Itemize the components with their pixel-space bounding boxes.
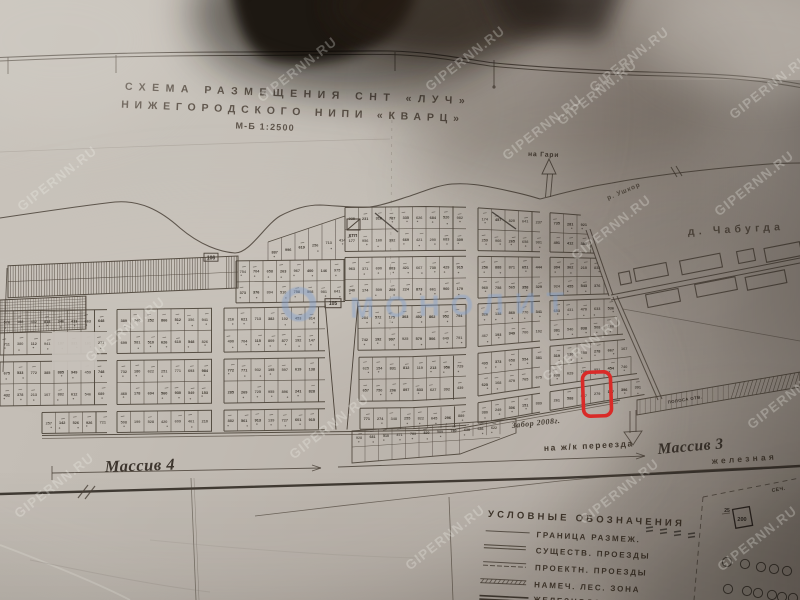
svg-text:146: 146 bbox=[321, 269, 327, 273]
svg-text:882: 882 bbox=[58, 393, 64, 397]
svg-text:690: 690 bbox=[376, 267, 382, 271]
svg-text:107: 107 bbox=[44, 393, 50, 397]
svg-text:115: 115 bbox=[255, 339, 261, 343]
svg-text:263: 263 bbox=[280, 269, 286, 273]
svg-text:658: 658 bbox=[509, 359, 515, 363]
svg-text:925: 925 bbox=[402, 337, 408, 341]
svg-text:231: 231 bbox=[362, 217, 368, 221]
svg-text:689: 689 bbox=[98, 392, 104, 396]
svg-text:941: 941 bbox=[202, 318, 208, 322]
svg-text:102: 102 bbox=[282, 317, 288, 321]
svg-text:694: 694 bbox=[148, 392, 155, 396]
svg-text:385: 385 bbox=[44, 371, 50, 375]
svg-text:508: 508 bbox=[121, 420, 127, 424]
svg-text:459: 459 bbox=[85, 370, 91, 374]
svg-text:619: 619 bbox=[299, 246, 305, 250]
svg-text:700: 700 bbox=[522, 331, 528, 335]
svg-text:178: 178 bbox=[134, 392, 140, 396]
svg-text:142: 142 bbox=[59, 421, 65, 425]
svg-text:721: 721 bbox=[100, 421, 106, 425]
svg-text:894: 894 bbox=[267, 291, 274, 295]
svg-text:981: 981 bbox=[321, 290, 327, 294]
svg-text:526: 526 bbox=[73, 421, 79, 425]
svg-text:833: 833 bbox=[417, 388, 423, 392]
svg-text:510: 510 bbox=[148, 341, 154, 345]
svg-text:105: 105 bbox=[329, 301, 338, 307]
svg-text:429: 429 bbox=[443, 266, 449, 270]
svg-text:560: 560 bbox=[161, 391, 167, 395]
svg-text:742: 742 bbox=[362, 338, 368, 342]
svg-text:177: 177 bbox=[349, 239, 355, 243]
svg-text:274: 274 bbox=[377, 417, 384, 421]
svg-text:956: 956 bbox=[444, 366, 450, 370]
svg-text:241: 241 bbox=[295, 390, 301, 394]
svg-text:261: 261 bbox=[554, 399, 560, 403]
svg-text:780: 780 bbox=[451, 429, 457, 433]
svg-text:648: 648 bbox=[98, 319, 104, 323]
svg-text:658: 658 bbox=[267, 270, 273, 274]
svg-text:255: 255 bbox=[404, 417, 410, 421]
svg-text:348: 348 bbox=[391, 417, 397, 421]
svg-text:461: 461 bbox=[188, 420, 194, 424]
svg-text:622: 622 bbox=[491, 426, 497, 430]
svg-text:421: 421 bbox=[416, 238, 422, 242]
svg-text:928: 928 bbox=[356, 436, 362, 440]
svg-text:439: 439 bbox=[457, 386, 463, 390]
svg-text:704: 704 bbox=[241, 339, 248, 343]
svg-text:356: 356 bbox=[188, 318, 194, 322]
svg-text:460: 460 bbox=[121, 392, 127, 396]
svg-text:296: 296 bbox=[445, 416, 451, 420]
svg-text:119: 119 bbox=[417, 366, 423, 370]
svg-text:349: 349 bbox=[509, 332, 515, 336]
svg-text:512: 512 bbox=[175, 318, 181, 322]
svg-text:820: 820 bbox=[424, 431, 430, 435]
svg-text:772: 772 bbox=[31, 371, 37, 375]
svg-text:882: 882 bbox=[228, 419, 234, 423]
svg-text:335: 335 bbox=[403, 216, 409, 220]
svg-text:926: 926 bbox=[86, 421, 92, 425]
svg-text:168: 168 bbox=[495, 381, 501, 385]
svg-text:306: 306 bbox=[509, 406, 515, 410]
svg-text:625: 625 bbox=[363, 367, 369, 371]
svg-text:866: 866 bbox=[161, 318, 167, 322]
svg-text:561: 561 bbox=[241, 419, 247, 423]
svg-text:533: 533 bbox=[17, 371, 23, 375]
svg-text:373: 373 bbox=[240, 291, 246, 295]
svg-text:638: 638 bbox=[464, 428, 470, 432]
svg-text:102: 102 bbox=[536, 330, 542, 334]
svg-text:675: 675 bbox=[4, 371, 10, 375]
svg-text:106: 106 bbox=[207, 256, 216, 262]
svg-text:686: 686 bbox=[478, 427, 484, 431]
svg-text:112: 112 bbox=[31, 342, 37, 346]
svg-text:627: 627 bbox=[430, 388, 436, 392]
svg-text:579: 579 bbox=[416, 337, 422, 341]
svg-text:625: 625 bbox=[482, 383, 488, 387]
svg-text:621: 621 bbox=[241, 317, 247, 321]
svg-text:195: 195 bbox=[268, 368, 274, 372]
svg-text:400: 400 bbox=[307, 269, 313, 273]
svg-text:915: 915 bbox=[309, 418, 315, 422]
svg-text:147: 147 bbox=[309, 338, 315, 342]
svg-text:955: 955 bbox=[268, 390, 274, 394]
svg-text:192: 192 bbox=[375, 338, 381, 342]
svg-text:589: 589 bbox=[437, 430, 443, 434]
svg-text:510: 510 bbox=[383, 434, 389, 438]
svg-text:210: 210 bbox=[202, 419, 208, 423]
svg-text:732: 732 bbox=[121, 370, 127, 374]
svg-text:528: 528 bbox=[148, 420, 154, 424]
svg-text:151: 151 bbox=[522, 404, 528, 408]
svg-text:249: 249 bbox=[495, 408, 501, 412]
svg-text:371: 371 bbox=[362, 267, 368, 271]
svg-text:153: 153 bbox=[202, 391, 208, 395]
svg-text:495: 495 bbox=[482, 362, 488, 366]
svg-text:549: 549 bbox=[188, 391, 194, 395]
svg-text:479: 479 bbox=[509, 379, 515, 383]
svg-text:771: 771 bbox=[175, 369, 181, 373]
svg-text:413: 413 bbox=[71, 320, 77, 324]
svg-text:713: 713 bbox=[326, 241, 332, 245]
svg-text:791: 791 bbox=[456, 336, 462, 340]
svg-text:588: 588 bbox=[567, 396, 573, 400]
svg-text:663: 663 bbox=[85, 319, 91, 323]
svg-text:МОНОЛИТ: МОНОЛИТ bbox=[350, 287, 576, 325]
svg-text:896: 896 bbox=[282, 390, 288, 394]
svg-text:199: 199 bbox=[134, 420, 140, 424]
svg-text:316: 316 bbox=[376, 217, 382, 221]
svg-text:554: 554 bbox=[522, 357, 529, 361]
svg-text:783: 783 bbox=[410, 432, 416, 436]
svg-text:139: 139 bbox=[268, 419, 274, 423]
svg-text:831: 831 bbox=[390, 366, 396, 370]
svg-text:787: 787 bbox=[389, 216, 395, 220]
svg-text:675: 675 bbox=[536, 376, 542, 380]
svg-text:192: 192 bbox=[295, 339, 301, 343]
svg-text:930: 930 bbox=[175, 391, 181, 395]
svg-text:941: 941 bbox=[44, 342, 50, 346]
svg-text:771: 771 bbox=[364, 417, 370, 421]
svg-text:828: 828 bbox=[309, 389, 315, 393]
svg-text:160: 160 bbox=[376, 239, 382, 243]
svg-text:771: 771 bbox=[241, 368, 247, 372]
svg-text:279: 279 bbox=[594, 392, 600, 396]
svg-text:669: 669 bbox=[403, 238, 409, 242]
svg-text:154: 154 bbox=[376, 367, 383, 371]
svg-text:257: 257 bbox=[46, 421, 52, 425]
svg-text:619: 619 bbox=[295, 368, 301, 372]
svg-text:380: 380 bbox=[17, 342, 23, 346]
svg-text:932: 932 bbox=[255, 368, 261, 372]
svg-text:730: 730 bbox=[430, 266, 436, 270]
svg-text:667: 667 bbox=[416, 266, 422, 270]
svg-text:803: 803 bbox=[389, 266, 395, 270]
svg-text:180: 180 bbox=[134, 370, 140, 374]
svg-text:765: 765 bbox=[522, 377, 528, 381]
svg-text:213: 213 bbox=[31, 393, 37, 397]
svg-text:421: 421 bbox=[403, 266, 409, 270]
svg-text:290: 290 bbox=[430, 238, 436, 242]
svg-text:216: 216 bbox=[228, 318, 234, 322]
svg-text:432: 432 bbox=[31, 320, 37, 324]
svg-text:376: 376 bbox=[253, 291, 259, 295]
svg-text:818: 818 bbox=[44, 320, 50, 324]
svg-text:581: 581 bbox=[134, 341, 140, 345]
svg-text:645: 645 bbox=[431, 416, 437, 420]
svg-text:826: 826 bbox=[202, 340, 208, 344]
svg-text:704: 704 bbox=[253, 270, 260, 274]
svg-text:822: 822 bbox=[418, 417, 424, 421]
svg-text:251: 251 bbox=[161, 369, 167, 373]
svg-text:809: 809 bbox=[268, 339, 274, 343]
svg-text:610: 610 bbox=[175, 340, 181, 344]
svg-text:629: 629 bbox=[567, 372, 573, 376]
svg-text:956: 956 bbox=[362, 239, 368, 243]
svg-text:467: 467 bbox=[482, 334, 488, 338]
svg-text:346: 346 bbox=[58, 320, 64, 324]
svg-text:984: 984 bbox=[202, 369, 209, 373]
svg-text:609: 609 bbox=[175, 420, 181, 424]
svg-text:373: 373 bbox=[495, 360, 501, 364]
svg-text:138: 138 bbox=[309, 367, 315, 371]
svg-text:188: 188 bbox=[17, 320, 23, 324]
svg-text:748: 748 bbox=[98, 370, 104, 374]
svg-text:915: 915 bbox=[457, 266, 463, 270]
svg-text:392: 392 bbox=[389, 238, 395, 242]
svg-text:256: 256 bbox=[312, 243, 318, 247]
svg-text:897: 897 bbox=[403, 388, 409, 392]
svg-text:812: 812 bbox=[403, 366, 409, 370]
svg-text:887: 887 bbox=[272, 250, 278, 254]
svg-text:622: 622 bbox=[148, 370, 154, 374]
svg-text:913: 913 bbox=[255, 419, 261, 423]
svg-text:641: 641 bbox=[334, 290, 340, 294]
svg-text:206: 206 bbox=[390, 388, 396, 392]
svg-text:754: 754 bbox=[240, 270, 247, 274]
svg-text:772: 772 bbox=[228, 369, 234, 373]
svg-text:871: 871 bbox=[397, 433, 403, 437]
svg-text:681: 681 bbox=[370, 435, 376, 439]
svg-text:382: 382 bbox=[268, 317, 274, 321]
svg-text:285: 285 bbox=[228, 391, 234, 395]
svg-text:877: 877 bbox=[282, 339, 288, 343]
svg-text:612: 612 bbox=[71, 393, 77, 397]
svg-text:601: 601 bbox=[295, 418, 301, 422]
svg-text:213: 213 bbox=[430, 366, 436, 370]
svg-text:975: 975 bbox=[334, 269, 340, 273]
svg-text:626: 626 bbox=[416, 216, 422, 220]
svg-text:381: 381 bbox=[536, 356, 542, 360]
svg-text:997: 997 bbox=[389, 337, 395, 341]
svg-text:432: 432 bbox=[4, 393, 10, 397]
svg-text:693: 693 bbox=[188, 369, 194, 373]
svg-text:889: 889 bbox=[536, 401, 542, 405]
svg-text:392: 392 bbox=[444, 388, 450, 392]
svg-text:729: 729 bbox=[457, 365, 463, 369]
svg-text:996: 996 bbox=[285, 248, 291, 252]
svg-text:935: 935 bbox=[349, 217, 355, 221]
svg-text:506: 506 bbox=[429, 337, 435, 341]
svg-text:725: 725 bbox=[255, 390, 261, 394]
svg-text:193: 193 bbox=[495, 333, 501, 337]
svg-text:380: 380 bbox=[482, 410, 488, 414]
svg-text:269: 269 bbox=[241, 390, 247, 394]
svg-text:546: 546 bbox=[85, 392, 91, 396]
svg-text:963: 963 bbox=[349, 267, 355, 271]
svg-text:889: 889 bbox=[458, 414, 464, 418]
svg-text:626: 626 bbox=[161, 340, 167, 344]
svg-text:548: 548 bbox=[188, 340, 194, 344]
svg-text:727: 727 bbox=[282, 418, 288, 422]
svg-text:713: 713 bbox=[255, 317, 261, 321]
svg-text:649: 649 bbox=[443, 337, 449, 341]
svg-text:885: 885 bbox=[58, 371, 64, 375]
svg-text:576: 576 bbox=[4, 320, 10, 324]
svg-text:597: 597 bbox=[282, 368, 288, 372]
svg-text:490: 490 bbox=[228, 340, 234, 344]
svg-text:420: 420 bbox=[161, 420, 167, 424]
svg-text:378: 378 bbox=[17, 393, 23, 397]
svg-text:967: 967 bbox=[294, 269, 300, 273]
svg-text:711: 711 bbox=[4, 342, 10, 346]
svg-text:750: 750 bbox=[376, 389, 382, 393]
svg-text:949: 949 bbox=[71, 371, 77, 375]
